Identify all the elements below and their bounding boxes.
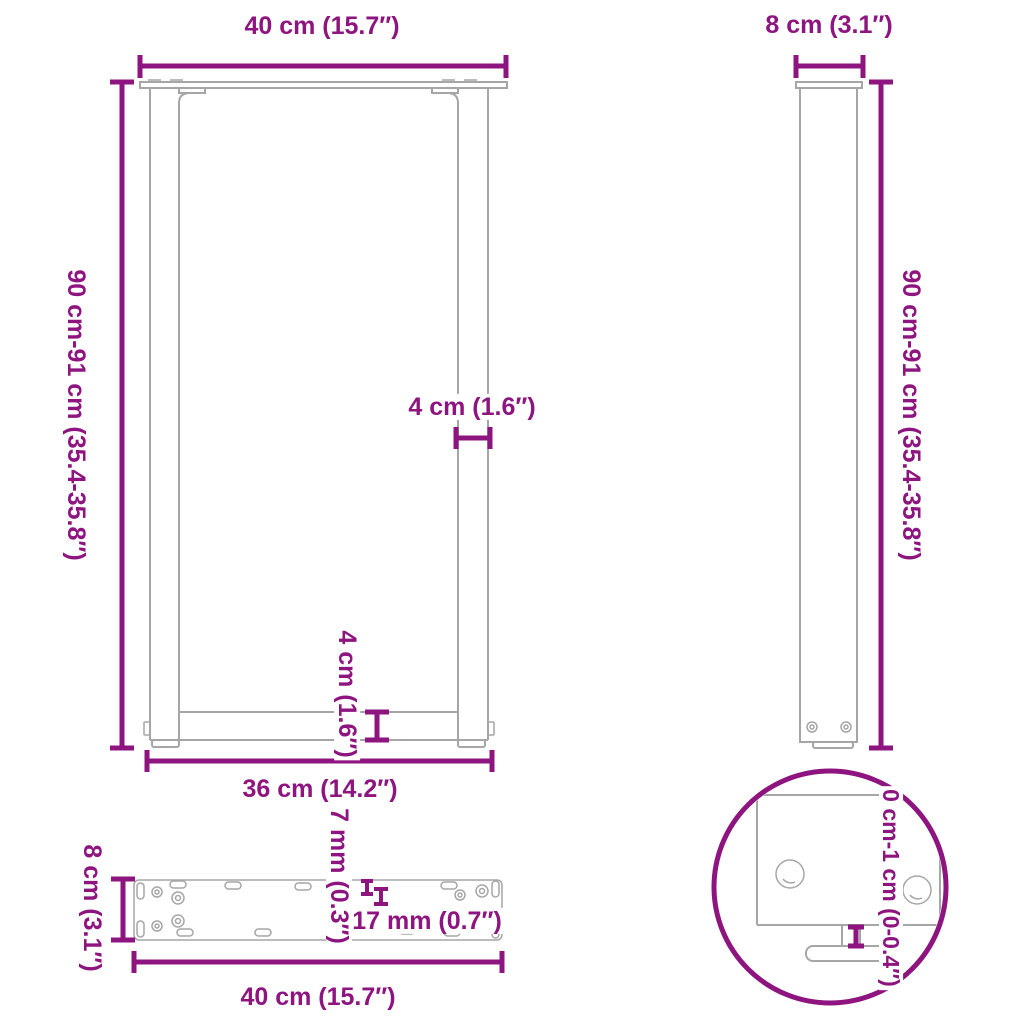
plate-slot-dimension-marker [374,889,388,904]
side-height-dimension-line [869,82,893,748]
side-top-dimension-line [796,55,863,78]
plate-depth-label: 8 cm (3.1″) [79,841,105,974]
plate-hole-dimension-marker [361,881,373,894]
front-crossbar-height-label: 4 cm (1.6″) [334,627,360,760]
detail-circle-outline [714,771,946,1003]
front-leg-thickness-dimension-line [456,427,490,449]
plate-hole-diameter-label: 7 mm (0.3″) [326,805,352,947]
plate-width-dimension-line [134,951,502,973]
dimension-diagram: 40 cm (15.7″) 90 cm-91 cm (35.4-35.8″) 4… [0,0,1024,1024]
diagram-drawing [0,0,1024,1024]
plate-slot-length-label: 17 mm (0.7″) [349,908,505,934]
front-height-label: 90 cm-91 cm (35.4-35.8″) [63,266,89,563]
detail-adjust-range-label: 0 cm-1 cm (0-0.4″) [879,786,903,990]
front-height-dimension-line [110,82,134,748]
front-top-dimension-line [140,55,506,78]
plate-depth-dimension-line [111,879,135,940]
front-width-bottom-label: 36 cm (14.2″) [239,776,400,802]
plate-width-label: 40 cm (15.7″) [237,984,398,1010]
front-crossbar-dimension-line [365,712,389,740]
side-height-label: 90 cm-91 cm (35.4-35.8″) [898,266,924,563]
front-leg-thickness-label: 4 cm (1.6″) [405,394,538,420]
side-width-top-label: 8 cm (3.1″) [762,12,895,38]
side-view-drawing [796,82,862,748]
front-bottom-dimension-line [147,750,492,772]
front-width-top-label: 40 cm (15.7″) [241,13,402,39]
